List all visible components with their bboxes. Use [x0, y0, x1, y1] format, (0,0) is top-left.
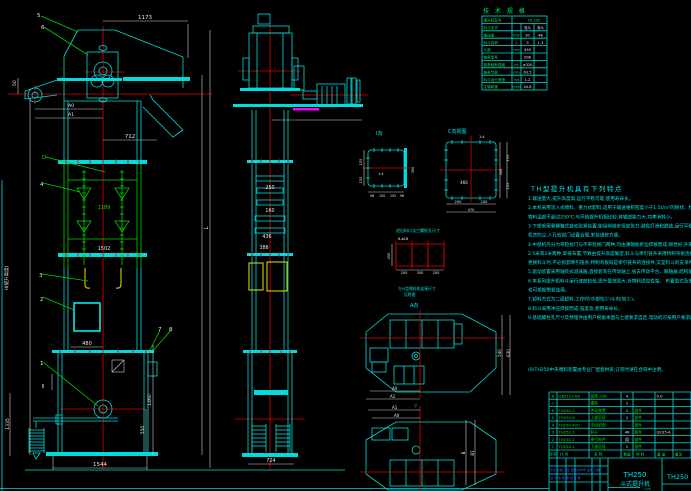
coupling-note-line2: 见附图	[404, 292, 416, 297]
notes-lines: 1.输送量大,提升高度高,运行平稳可靠,使用寿命长。2.本机采用流入式喂料、重力…	[528, 195, 691, 321]
parts-list: 8GB5127-84链条 20B49.07螺栓16TH250.7传动装置1部件5…	[549, 392, 691, 458]
spec-row-label: 链条节距	[484, 69, 499, 74]
notes-extra-line: (9)TH250中央喂料装置由专业厂配套供货,订货时请在合同中注明。	[528, 366, 666, 373]
spec-row-label: 料斗形式	[484, 25, 499, 30]
dim-1544: 1544	[93, 462, 107, 468]
detail-c-dim-300: 300	[499, 169, 503, 176]
balloon-2: 2	[40, 297, 44, 303]
detail-c-dim-200a: 200	[455, 200, 462, 204]
note-line: 4.中部机壳分为带检视门与不带检视门两种,均由薄钢板折边焊接而成,刚性好,外形美…	[528, 241, 691, 248]
bom-cell-code: TH250.2	[558, 437, 576, 442]
bom-cell-qty: 组	[625, 437, 629, 442]
titleblock-drawing-no: TH250	[666, 473, 688, 481]
note-line: 机壳防尘,人孔检视门设置合理,安装维修方便。	[528, 232, 623, 239]
cad-drawing-canvas[interactable]: 5 6 4 3 2 1 7 8 D 1173 712 A0 A1 50 1189…	[0, 0, 691, 491]
bom-cell-code: TH250.1	[558, 444, 576, 449]
spec-row-unit: L	[516, 41, 518, 45]
balloon-7: 7	[158, 327, 162, 333]
detail-a-dim-b4: 98	[400, 194, 404, 198]
note-line: 7.卸料方式为二级卸料,工作时(中部较少)斗内(较少)。	[528, 296, 637, 303]
balloon-3: 3	[39, 273, 43, 279]
bom-cell-no: 3	[552, 430, 555, 435]
bom-cell-material: 部件	[635, 422, 643, 427]
feed-detail-dim-450: 450	[387, 253, 391, 260]
bom-header: 数量	[623, 452, 631, 457]
detail-a-dim-b3: 155	[390, 194, 396, 198]
spec-row-value: 浅斗	[524, 25, 532, 30]
spec-table: 技 术 规 格 提升机型号TH 250料斗形式浅斗深斗输送量m³/h3048料斗…	[482, 7, 547, 90]
detail-a-label: Ⅰ向	[376, 130, 382, 137]
bom-cell-material: 部件	[635, 437, 643, 442]
spec-row-label: 提升机型号	[484, 18, 502, 23]
section-ii-label: Ⅱ	[42, 384, 44, 390]
titleblock-signature-row: 设 计 校 核 审 定 批 准	[550, 475, 581, 480]
spec-row-value: 1.3	[538, 41, 544, 45]
note-line: 6.本系列提升机料斗运行速度较低,提升量范围大,对物料适应性强。 布置型式及安装…	[528, 277, 691, 284]
bom-cell-code: TH250.3	[558, 430, 576, 435]
bom-cell-name: 料斗	[591, 430, 599, 435]
bom-cell-name: 上部区段	[591, 415, 606, 420]
bom-cell-no: 7	[552, 401, 555, 406]
note-line: 8.料斗采用冲压焊接而成,强度高,使用寿命长。	[528, 305, 623, 312]
spec-row-value: 深斗	[537, 25, 545, 30]
spec-row-label: 链条型号	[484, 55, 499, 60]
front-view-mid-green-section	[46, 157, 141, 268]
dim-160: 160	[265, 208, 274, 214]
bom-cell-name: 链条 20B	[591, 393, 608, 398]
bom-cell-name: 中间机壳	[591, 422, 606, 427]
bom-header: 备注	[675, 452, 683, 457]
dim-1173: 1173	[138, 15, 152, 21]
spec-row-unit: r/min	[512, 85, 520, 89]
bom-cell-no: 2	[552, 437, 555, 442]
dim-50: 50	[12, 80, 18, 86]
spec-table-title: 技 术 规 格	[483, 7, 527, 15]
detail-a-dim-300: 300	[411, 167, 415, 174]
spec-table-rows: 提升机型号TH 250料斗形式浅斗深斗输送量m³/h3048料斗容积L31.3斗…	[482, 16, 547, 90]
detail-view-a: Ⅰ向 1:4 155 155 300 98 155 155 98	[359, 130, 415, 198]
note-line: 2.5米和2米两种,单排布置,节数由提升高度确定,料斗与牵引链条采用特制弯板连接…	[528, 250, 691, 257]
spec-row-value: ≥320	[523, 63, 534, 67]
front-view-head	[25, 30, 190, 137]
dim-1189: 1189	[98, 205, 111, 211]
spec-row-label: 料斗运行速度	[484, 77, 506, 82]
sheet-border	[0, 180, 549, 491]
front-view-labels: 5 6 4 3 2 1 7 8 D 1173 712 A0 A1 50 1189…	[3, 13, 210, 468]
bom-header: 名 称	[594, 452, 603, 457]
bom-header: 代 号	[560, 452, 569, 457]
balloon-6: 6	[41, 25, 45, 31]
spec-row-label: 链条破断强度	[484, 62, 506, 67]
plan-a-dim-630: 630	[506, 349, 511, 357]
plan-a-dim-a0: A0	[392, 386, 398, 391]
elevator-assembly-drawing: 5 6 4 3 2 1 7 8 D 1173 712 A0 A1 50 1189…	[0, 0, 691, 491]
bom-cell-name: 牵引构件	[591, 437, 606, 442]
bom-cell-code: GB5127-84	[559, 393, 581, 398]
feed-detail-holes: 8-φ18	[398, 237, 408, 241]
dim-1502: 1502	[98, 246, 111, 252]
bom-cell-code: TH250.7	[558, 408, 576, 413]
bom-header: 材 料	[636, 452, 645, 457]
dim-250: 250	[265, 185, 274, 191]
detail-c-dim-155a: 155	[506, 155, 510, 162]
spec-row-unit: mm	[513, 70, 519, 74]
plan-b-section-marker: ▽	[414, 403, 418, 408]
plan-b-dim-a0: A0	[394, 413, 400, 418]
selection-node[interactable]	[320, 107, 325, 112]
bom-cell-name: 螺栓	[591, 401, 599, 406]
bom-cell-qty: 1	[626, 415, 629, 420]
detail-c-dim-470: 470	[468, 208, 475, 212]
balloon-1: 1	[40, 361, 44, 367]
bom-cell-material: 部件	[635, 415, 643, 420]
note-line: 2.本机采用流入式喂料、重力式卸料,适用于输送堆积密度小于1.5t/m³的粉状、…	[528, 204, 691, 211]
feed-detail-dim-b2: 300	[417, 271, 424, 275]
detail-c-scale: 1:4	[479, 135, 485, 139]
plan-a-dim-540: 540	[497, 349, 502, 357]
detail-view-c: C向视图 1:4 466 200 200 470 300 155 155	[440, 128, 510, 212]
dim-a1: A1	[68, 112, 74, 118]
bom-cell-no: 8	[552, 393, 555, 398]
dim-1335: 1335	[5, 418, 11, 430]
note-line: 5.驱动装置采用轴装式减速器,直接套装在传动轴上,省去传动平台、联轴器,结构紧凑…	[528, 268, 691, 275]
notes-block: TH型提升机具有下列特点 1.输送量大,提升高度高,运行平稳可靠,使用寿命长。2…	[528, 184, 691, 373]
note-line: 物料温度不超过250℃,与环链提升机相比较,其输送能力大,功率消耗小。	[528, 213, 675, 220]
dim-480: 480	[82, 341, 92, 347]
balloon-8: 8	[169, 327, 173, 333]
bom-header: 序号	[549, 452, 557, 457]
bom-cell-no: 1	[552, 444, 555, 449]
spec-row-value: TH 250	[527, 19, 542, 23]
bom-cell-no: 5	[552, 415, 555, 420]
plan-b-dim-b1: B1	[470, 450, 475, 456]
note-line: 9.基础螺栓孔尺寸及预埋件由用户根据本图与土建要求自定,电动机可按用户要求配置(…	[528, 314, 691, 321]
dim-712: 712	[125, 134, 136, 140]
spec-row-value: 44.8	[523, 85, 532, 89]
spec-row-value: 450	[524, 48, 532, 52]
bom-cell-qty: 46	[625, 430, 630, 435]
detail-a-dim-b2: 155	[379, 194, 385, 198]
titleblock-revision-row: 标记 处数 分区 更改文件号 签名 日期	[550, 467, 600, 472]
view-a-label: A向	[410, 302, 418, 309]
note-line: 更换料斗时,不必拆卸牵引链条,特制弯板既是牵引链条的连接件,又是料斗的支承件。	[528, 259, 691, 266]
plan-a-dim-a1: A1	[390, 394, 396, 399]
spec-row-value: 1.2	[525, 78, 531, 82]
selected-line-highlight[interactable]	[293, 108, 319, 111]
feed-detail-title: 进出料口法兰螺栓孔尺寸	[396, 227, 440, 233]
spec-row-unit: m³/h	[513, 33, 520, 37]
spec-row-label: 主轴转速	[484, 84, 499, 89]
spec-row-label: 斗距	[484, 47, 492, 52]
notes-title: TH型提升机具有下列特点	[530, 184, 623, 193]
bom-cell-qty: 1	[626, 444, 629, 449]
bom-cell-qty: 1	[626, 401, 629, 406]
spec-row-unit: mm	[513, 48, 519, 52]
spec-row-value: 48	[538, 33, 543, 37]
coupling-note-line1: 与YJ型喂料机连接尺寸	[398, 286, 436, 291]
note-line: 也可根据需要选用。	[528, 287, 569, 294]
dim-388: 388	[259, 245, 268, 251]
feed-detail-dim-b1: 200	[401, 271, 408, 275]
dim-a0: A0	[68, 103, 74, 109]
bom-cell-qty: 1	[626, 408, 629, 413]
spec-row-unit: kN	[514, 63, 519, 67]
bom-cell-material: 部件	[635, 444, 643, 449]
spec-row-value: 3	[526, 41, 528, 45]
note-line: 3.下部采用重锤箱式自动张紧装置,能保持链条恒定张力,避免打滑和脱链,运行平稳可…	[528, 222, 691, 229]
dim-724: 724	[266, 458, 275, 464]
length-label: L	[203, 226, 210, 230]
bom-cell-code: TH250.4(5)	[558, 422, 581, 427]
spec-row-value: 30	[525, 33, 530, 37]
bom-cell-no: 6	[552, 408, 555, 413]
detail-a-dim-b1: 98	[370, 194, 374, 198]
bom-cell-no: 4	[552, 422, 555, 427]
bom-cell-weight: Q235-A	[657, 430, 672, 435]
titleblock-model: TH250	[623, 471, 647, 479]
side-view-head-and-drive	[233, 14, 363, 121]
note-line: 1.输送量大,提升高度高,运行平稳可靠,使用寿命长。	[528, 195, 633, 202]
bom-cell-material: 组件	[635, 430, 643, 435]
view-d-label: D	[42, 155, 46, 161]
dim-550: 550	[140, 426, 146, 435]
bom-cell-weight: 9.0	[657, 393, 664, 398]
spec-row-value: 20B	[524, 56, 532, 60]
spec-row-label: 输送量	[484, 32, 495, 37]
plan-view-a: A0 A1 540 630	[360, 310, 511, 399]
bom-cell-qty: 4	[626, 393, 629, 398]
plan-view-b: ▽ A1 A0 B B1	[360, 403, 505, 491]
spec-row-unit: m/s	[514, 78, 520, 82]
bom-cell-material: 部件	[635, 408, 643, 413]
bom-cell-name: 下部区段	[591, 444, 606, 449]
feed-detail-dim-b3: 200	[433, 271, 440, 275]
front-view-leader-lines	[41, 16, 171, 406]
plan-b-dim-a1: A1	[392, 405, 398, 410]
bom-header: 重 量	[657, 452, 666, 457]
balloon-5: 5	[37, 13, 41, 19]
plan-b-dim-b: B	[461, 451, 466, 454]
dim-436: 436	[262, 234, 271, 240]
spec-row-label: 料斗容积	[484, 40, 499, 45]
title-block: 标记 处数 分区 更改文件号 签名 日期 设 计 校 核 审 定 批 准 TH2…	[549, 458, 691, 491]
spec-row-value: 63.5	[523, 70, 531, 74]
detail-a-dim-155a: 155	[359, 159, 363, 166]
detail-c-dim-155b: 155	[506, 183, 510, 190]
detail-a-dim-155b: 155	[359, 177, 363, 184]
height-label: H(提升高度)	[3, 265, 10, 290]
coupling-note: 与YJ型喂料机连接尺寸 见附图 A向	[398, 286, 436, 309]
side-view-dim-texts: 250 160 436 388 724	[259, 185, 275, 464]
detail-c-inner-dim: 466	[460, 180, 468, 185]
detail-c-dim-200b: 200	[481, 200, 488, 204]
dim-1460: 1460	[147, 394, 153, 406]
bom-cell-name: 传动装置	[591, 408, 606, 413]
detail-c-label: C向视图	[448, 128, 467, 135]
titleblock-scale: 1:25	[644, 487, 651, 491]
detail-a-scale: 1:4	[378, 172, 384, 176]
balloon-4: 4	[40, 182, 44, 188]
feed-opening-detail: 进出料口法兰螺栓孔尺寸 8-φ18 450 200 300 200	[387, 227, 444, 275]
bom-cell-code: TH250.6	[558, 415, 576, 420]
